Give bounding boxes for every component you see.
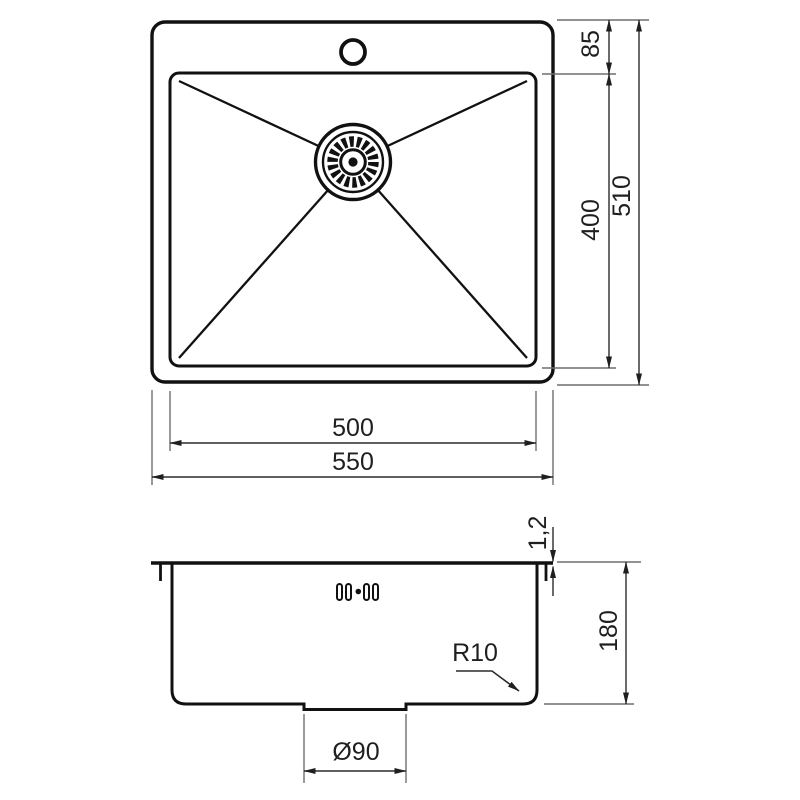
basin-outline (170, 73, 536, 366)
dim-label-180: 180 (595, 610, 623, 652)
dim-label-400: 400 (577, 199, 605, 241)
dimension-85: 85 (542, 20, 649, 74)
overflow-slot (373, 584, 378, 600)
crease-line-top-right (388, 81, 528, 146)
technical-drawing-canvas: 85 400 510 500 550 (0, 0, 800, 800)
drain-strainer (316, 125, 391, 200)
overflow-slot (364, 584, 369, 600)
dim-label-500: 500 (332, 414, 374, 442)
overflow-slot (337, 584, 342, 600)
overflow-dot (356, 589, 362, 595)
dim-label-r10: R10 (452, 639, 498, 667)
sink-dimension-drawing: 85 400 510 500 550 (0, 0, 800, 800)
leader-line-r10 (456, 671, 519, 691)
side-view: 1,2 180 R10 Ø90 (151, 516, 641, 783)
crease-line-bottom-left (179, 190, 328, 358)
crease-line-top-left (179, 81, 319, 146)
crease-line-bottom-right (378, 190, 527, 358)
dimension-drain-diameter: Ø90 (304, 714, 406, 783)
sink-outer-outline (152, 22, 553, 382)
overflow-slots (337, 584, 378, 600)
faucet-hole (341, 40, 365, 64)
overflow-slot (346, 584, 351, 600)
dim-label-85: 85 (577, 30, 605, 58)
crease-lines (179, 81, 527, 358)
dim-label-drain-diameter: Ø90 (332, 738, 379, 766)
drain-center-cap (348, 157, 357, 166)
dimension-180: 180 (544, 562, 641, 704)
bowl-body-outline (172, 565, 537, 710)
dim-label-1-2: 1,2 (524, 516, 552, 551)
radius-callout-r10: R10 (452, 639, 519, 691)
dimension-500: 500 (170, 391, 536, 451)
top-view: 85 400 510 500 550 (152, 20, 649, 485)
dim-label-510: 510 (608, 175, 636, 217)
dim-label-550: 550 (332, 448, 374, 476)
